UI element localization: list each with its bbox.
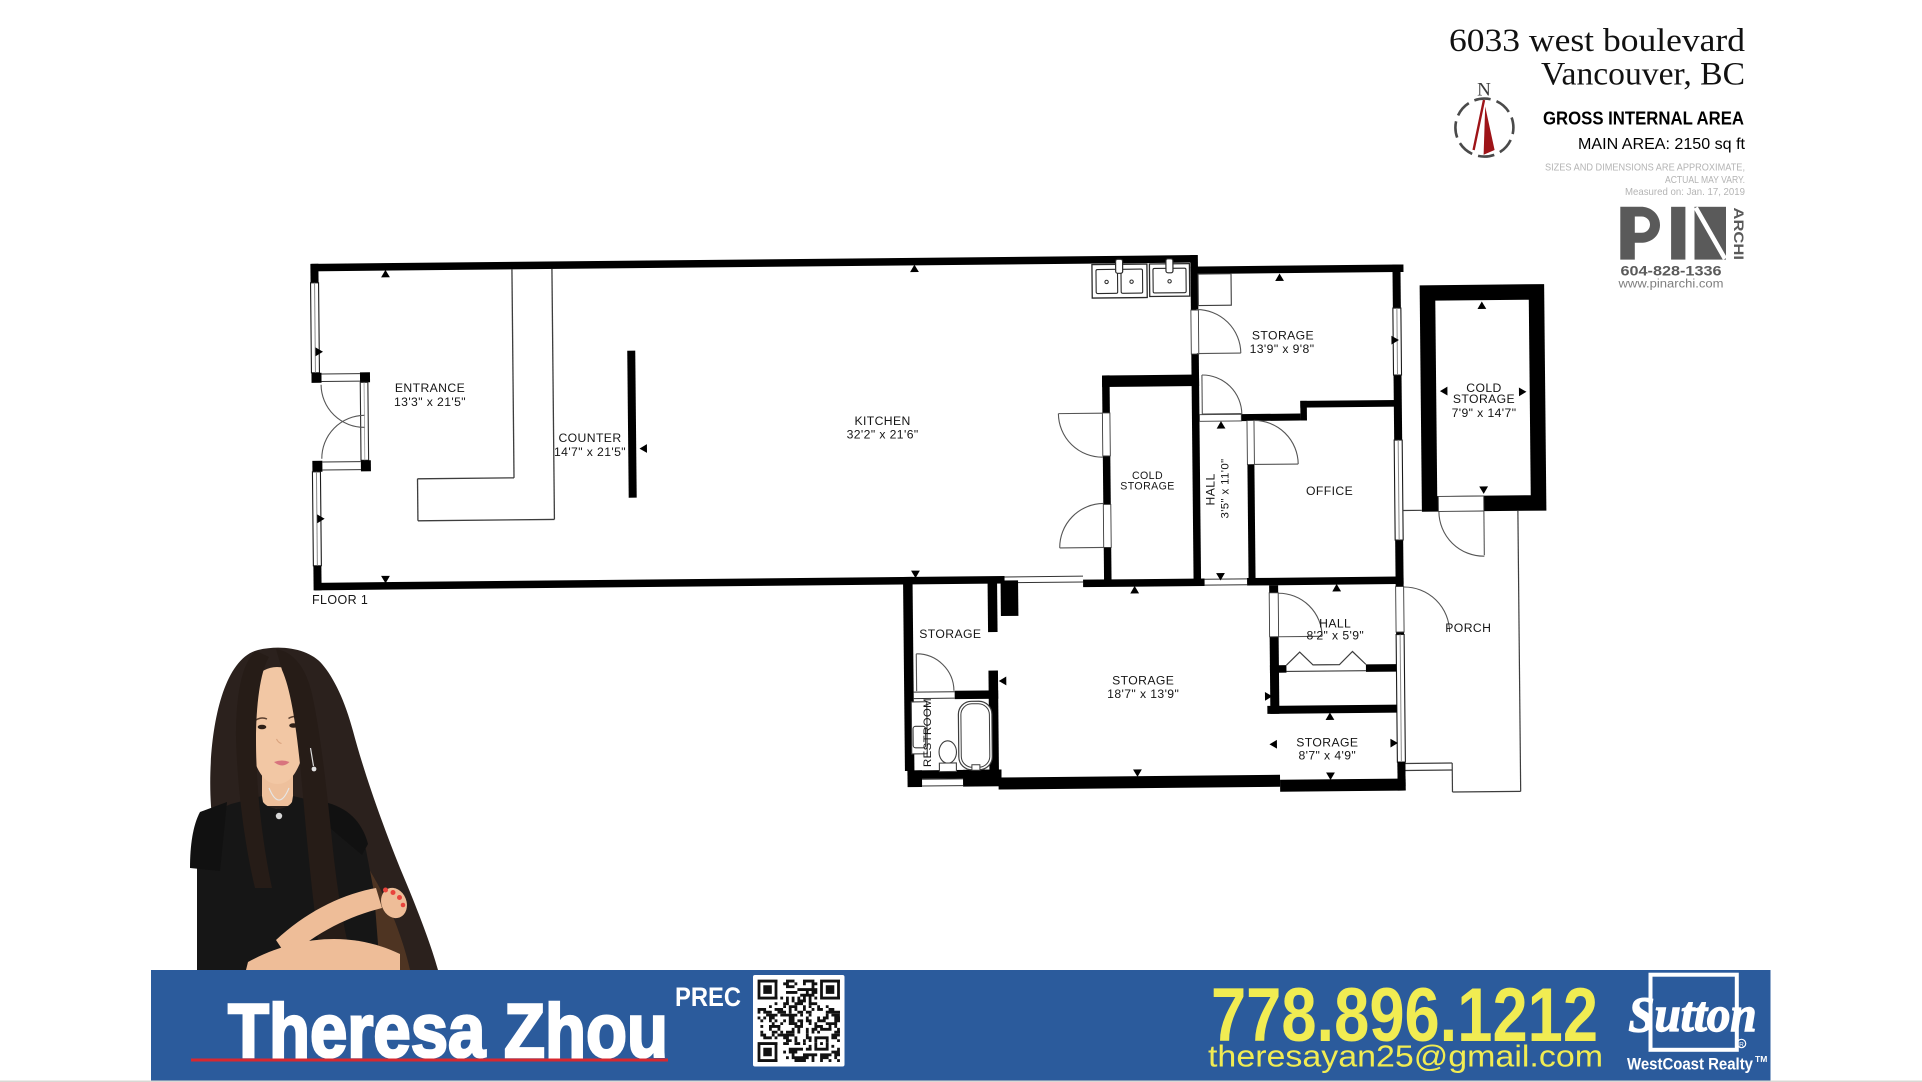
- svg-text:KITCHEN: KITCHEN: [854, 414, 910, 428]
- svg-text:OFFICE: OFFICE: [1306, 484, 1353, 498]
- svg-text:604-828-1336: 604-828-1336: [1621, 263, 1722, 279]
- svg-text:18'7" x 13'9": 18'7" x 13'9": [1107, 687, 1179, 701]
- svg-text:ENTRANCE: ENTRANCE: [395, 381, 465, 395]
- svg-text:STORAGE: STORAGE: [1120, 480, 1174, 492]
- svg-text:STORAGE: STORAGE: [1296, 736, 1358, 750]
- svg-text:ACTUAL MAY VARY.: ACTUAL MAY VARY.: [1665, 174, 1745, 186]
- svg-text:theresayan25@gmail.com: theresayan25@gmail.com: [1208, 1039, 1603, 1074]
- svg-text:WestCoast Realty: WestCoast Realty: [1627, 1055, 1753, 1074]
- svg-text:13'9" x 9'8": 13'9" x 9'8": [1250, 342, 1315, 356]
- svg-text:R: R: [1739, 1041, 1744, 1048]
- svg-text:Vancouver, BC: Vancouver, BC: [1541, 57, 1745, 93]
- svg-text:STORAGE: STORAGE: [1453, 392, 1515, 406]
- svg-text:8'2" x 5'9": 8'2" x 5'9": [1306, 629, 1364, 643]
- svg-text:13'3" x 21'5": 13'3" x 21'5": [394, 395, 466, 409]
- svg-text:STORAGE: STORAGE: [1252, 329, 1314, 343]
- svg-text:www.pinarchi.com: www.pinarchi.com: [1617, 279, 1723, 291]
- svg-text:32'2" x 21'6": 32'2" x 21'6": [847, 428, 919, 442]
- svg-text:PREC: PREC: [675, 982, 741, 1012]
- svg-text:PORCH: PORCH: [1445, 621, 1491, 635]
- svg-text:Measured on: Jan. 17, 2019: Measured on: Jan. 17, 2019: [1625, 186, 1745, 198]
- svg-text:ARCHI: ARCHI: [1731, 208, 1746, 261]
- svg-text:Sutton: Sutton: [1629, 986, 1757, 1042]
- svg-text:7'9" x 14'7": 7'9" x 14'7": [1452, 406, 1517, 420]
- svg-text:GROSS INTERNAL AREA: GROSS INTERNAL AREA: [1543, 109, 1744, 129]
- svg-text:HALL: HALL: [1204, 473, 1218, 505]
- svg-text:SIZES AND DIMENSIONS ARE APPRO: SIZES AND DIMENSIONS ARE APPROXIMATE,: [1545, 162, 1745, 174]
- svg-text:RESTROOM: RESTROOM: [922, 698, 934, 767]
- svg-text:FLOOR 1: FLOOR 1: [312, 593, 368, 607]
- svg-text:STORAGE: STORAGE: [919, 627, 981, 641]
- svg-text:COUNTER: COUNTER: [558, 431, 621, 445]
- svg-text:STORAGE: STORAGE: [1112, 674, 1174, 688]
- svg-text:MAIN AREA: 2150 sq ft: MAIN AREA: 2150 sq ft: [1578, 136, 1746, 153]
- svg-text:TM: TM: [1755, 1054, 1767, 1064]
- svg-text:8'7" x 4'9": 8'7" x 4'9": [1298, 749, 1356, 763]
- svg-text:6033 west boulevard: 6033 west boulevard: [1449, 23, 1745, 59]
- svg-text:14'7" x 21'5": 14'7" x 21'5": [554, 445, 626, 459]
- svg-text:3'5" x 11'0": 3'5" x 11'0": [1220, 458, 1232, 518]
